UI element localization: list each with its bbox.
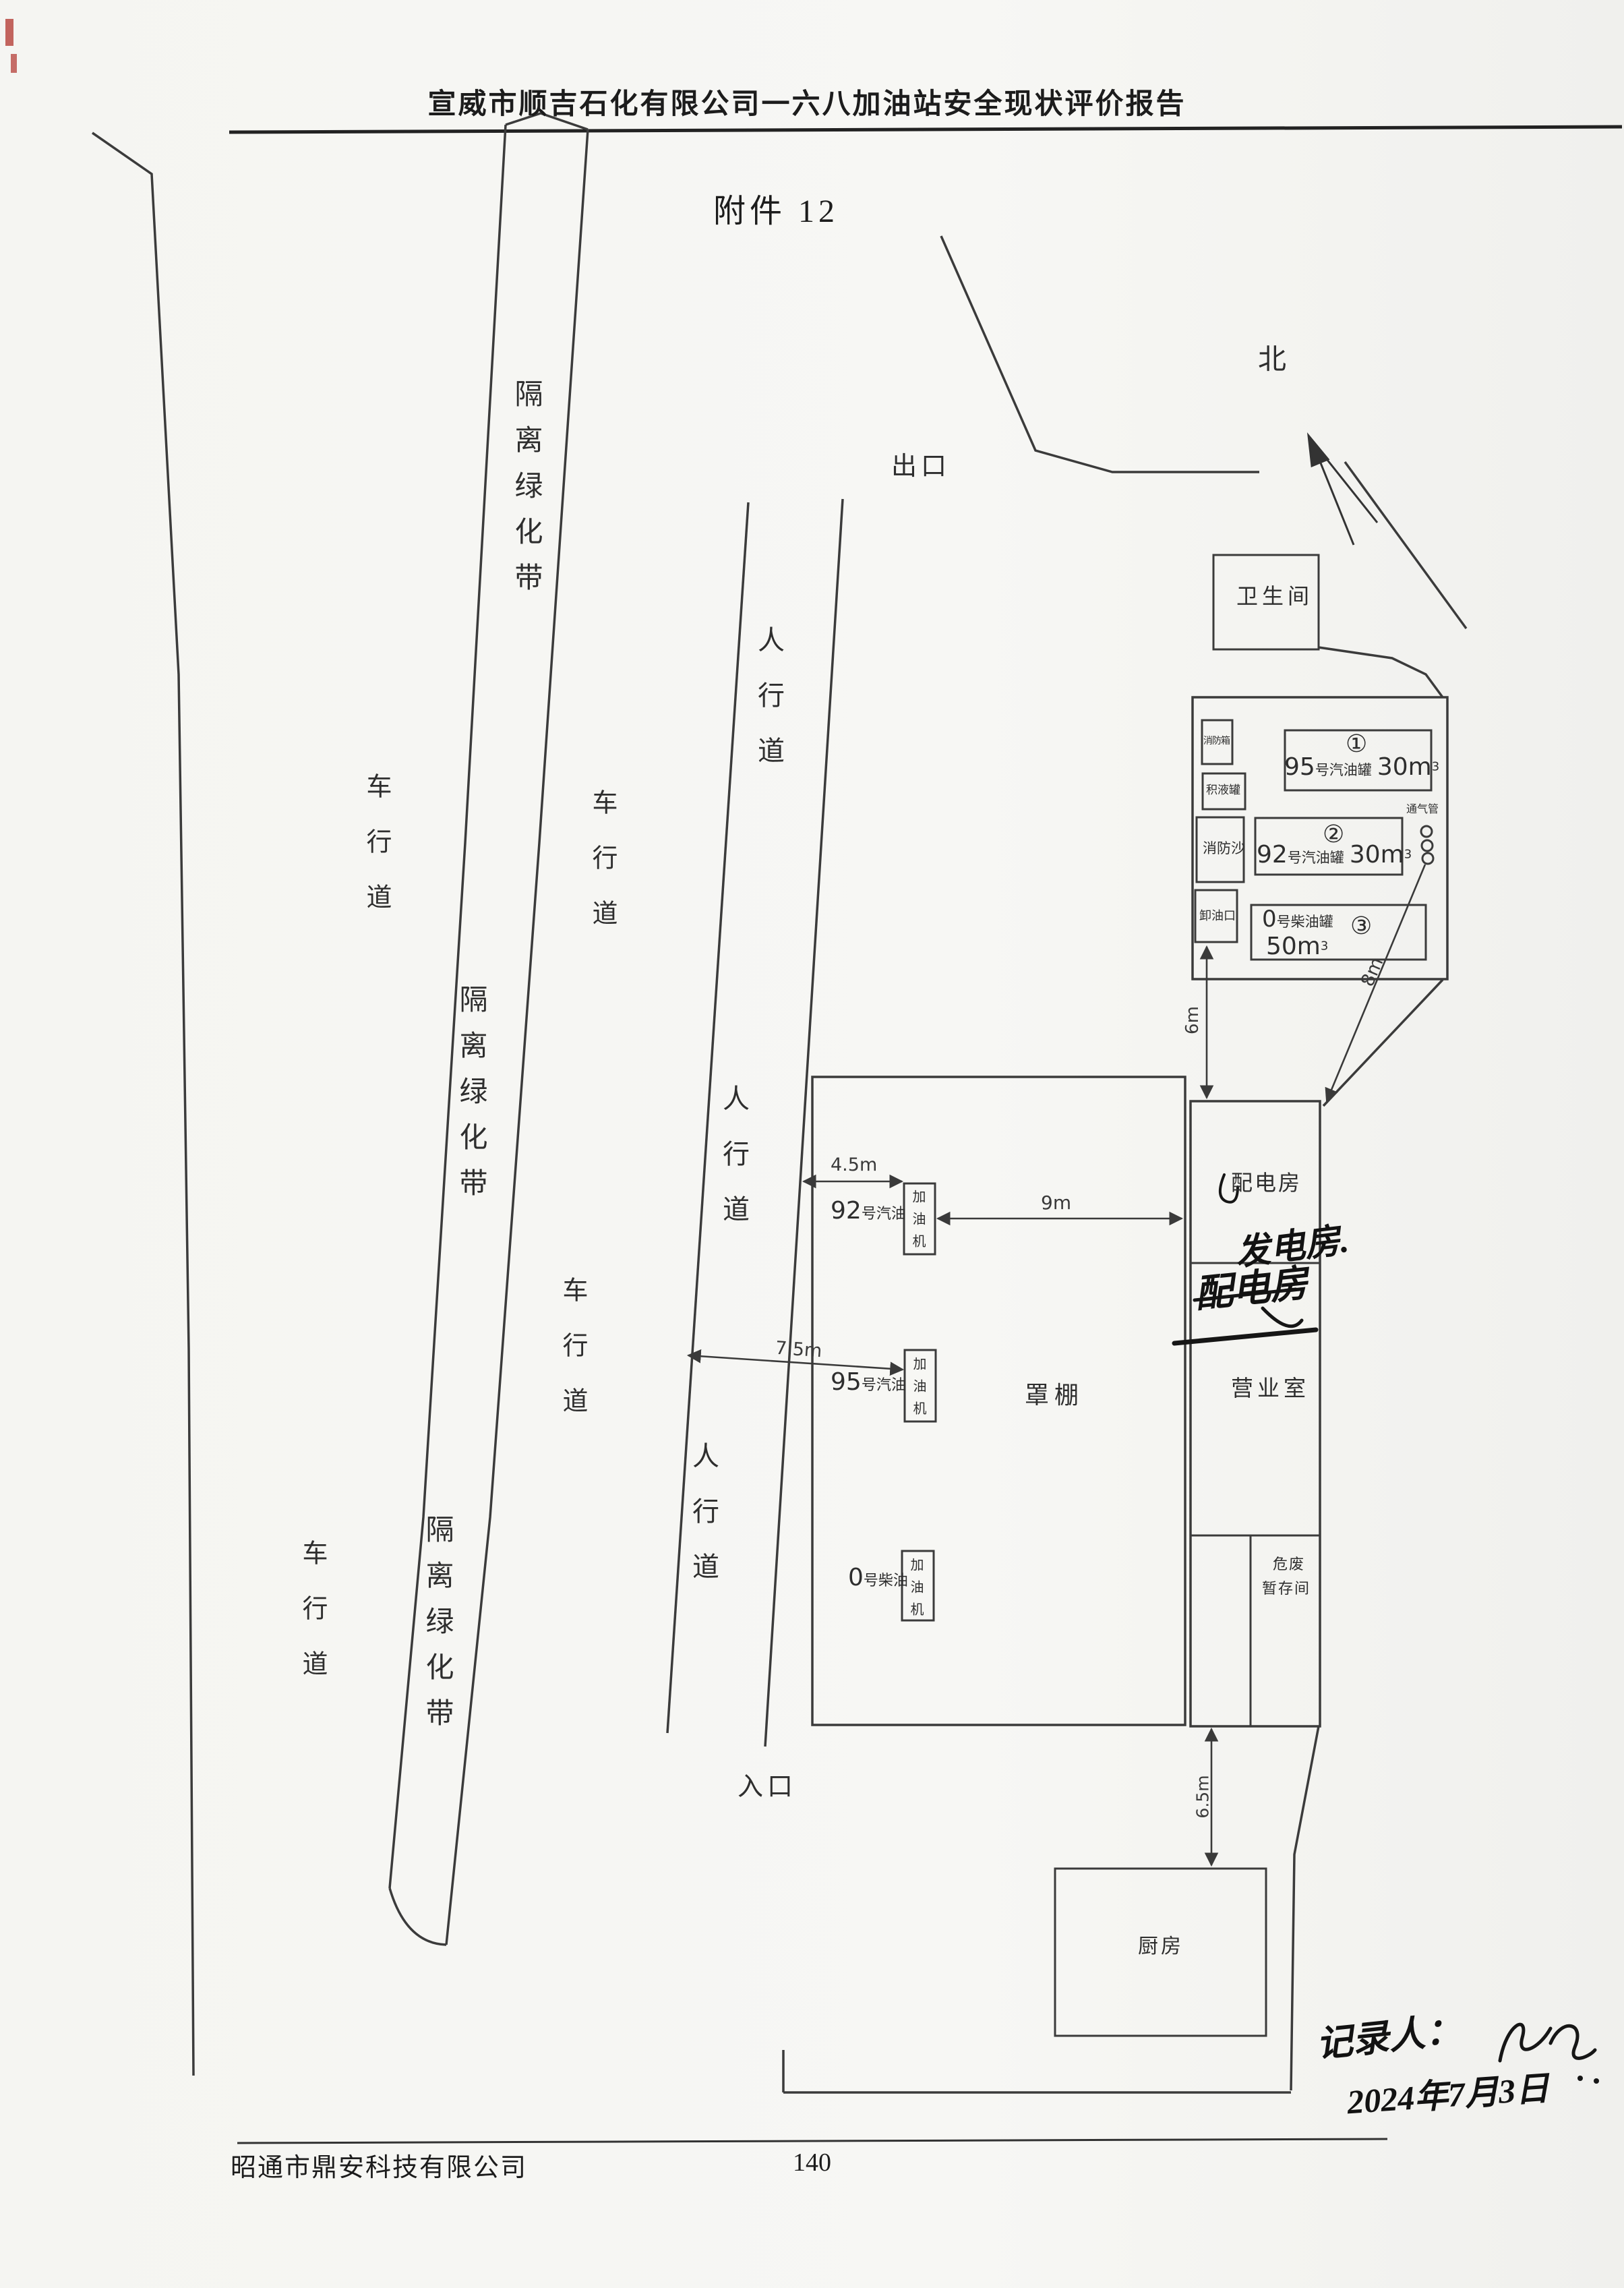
site-boundaries bbox=[783, 236, 1466, 2092]
scan-artifact-red-marks bbox=[5, 19, 17, 73]
dispenser-3-fuel-num: 0 bbox=[848, 1564, 864, 1591]
tank-1-volume: 30m bbox=[1377, 753, 1432, 781]
sidewalk-label-3: 人行道 bbox=[690, 1442, 717, 1608]
page-title: 宣威市顺吉石化有限公司一六八加油站安全现状评价报告 bbox=[335, 90, 1279, 119]
exit-boundary bbox=[941, 236, 1259, 472]
strike-2 bbox=[1174, 1330, 1316, 1343]
tank-3-volume-sup: 3 bbox=[1321, 939, 1328, 954]
vent-pipe-1 bbox=[1421, 826, 1432, 837]
tankarea-to-building-boundary bbox=[1323, 980, 1443, 1106]
tank-1-id: ① bbox=[1346, 732, 1367, 757]
vent-pipe-3 bbox=[1422, 853, 1433, 864]
tank-2-volume: 30m bbox=[1350, 841, 1404, 869]
hazwaste-label-line2: 暂存间 bbox=[1262, 1582, 1311, 1597]
restroom-boundary-curve bbox=[1319, 647, 1443, 697]
footer-page-number: 140 bbox=[793, 2150, 831, 2175]
restroom-label: 卫生间 bbox=[1236, 585, 1313, 607]
tank-2-num: 92 bbox=[1257, 841, 1288, 869]
greenbelt-label-2: 隔离绿化带 bbox=[457, 985, 485, 1214]
vent-pipe-label: 通气管 bbox=[1406, 804, 1439, 815]
tank-3-label-line1: 0号柴油罐 bbox=[1262, 908, 1333, 931]
vent-pipe-2 bbox=[1422, 840, 1433, 851]
tank-2-name: 号汽油罐 bbox=[1288, 850, 1344, 866]
dispenser-2-fuel-num: 95 bbox=[831, 1368, 862, 1396]
dispenser-3-fuel-name: 号柴油 bbox=[864, 1573, 908, 1589]
signature-dot-2 bbox=[1594, 2078, 1599, 2084]
dim-9m-label: 9m bbox=[1041, 1194, 1071, 1212]
north-label: 北 bbox=[1258, 345, 1286, 374]
business-room-label: 营业室 bbox=[1231, 1377, 1310, 1399]
footer-rule bbox=[237, 2139, 1387, 2143]
tank-3-volume: 50m bbox=[1266, 933, 1321, 960]
signature-dot-1 bbox=[1577, 2076, 1583, 2081]
tank-2-volume-sup: 3 bbox=[1404, 848, 1412, 862]
dispenser-2-unit-label: 加油机 bbox=[912, 1357, 926, 1424]
attachment-title: 附件 12 bbox=[713, 196, 839, 228]
sidewalk-label-2: 人行道 bbox=[720, 1084, 747, 1250]
dispenser-2-fuel-label: 95号汽油 bbox=[831, 1370, 906, 1395]
tank-1-num: 95 bbox=[1284, 753, 1315, 781]
tank-2-label: 92号汽油罐30m3 bbox=[1257, 843, 1412, 867]
lane-label-1: 车行道 bbox=[364, 773, 390, 939]
dim-7-5m-label: 7.5m bbox=[775, 1339, 822, 1361]
tank-3-name: 号柴油罐 bbox=[1277, 914, 1333, 930]
tank-3-id: ③ bbox=[1350, 914, 1372, 939]
fire-sand-label: 消防沙 bbox=[1203, 842, 1245, 856]
tank-3-label-line2: 50m3 bbox=[1266, 935, 1328, 959]
site-plan-linework bbox=[0, 0, 1624, 2288]
dim-6m-label: 6m bbox=[1184, 1006, 1201, 1034]
tank-1-label: 95号汽油罐30m3 bbox=[1284, 755, 1439, 780]
greenbelt-label-1: 隔离绿化带 bbox=[512, 379, 541, 608]
kitchen-label: 厨房 bbox=[1138, 1937, 1184, 1957]
sidewalk-label-1: 人行道 bbox=[755, 626, 782, 792]
fire-cabinet-label: 消防箱 bbox=[1203, 736, 1230, 746]
signature-scribble bbox=[1500, 2024, 1595, 2061]
lane-label-3: 车行道 bbox=[560, 1277, 586, 1442]
dim-4-5m-label: 4.5m bbox=[831, 1156, 877, 1174]
dispenser-1-fuel-name: 号汽油 bbox=[862, 1206, 906, 1223]
entrance-label: 入口 bbox=[738, 1773, 797, 1799]
scanned-site-plan-page: 宣威市顺吉石化有限公司一六八加油站安全现状评价报告 附件 12 隔离绿化带 隔离… bbox=[0, 0, 1624, 2288]
tank-1-name: 号汽油罐 bbox=[1315, 762, 1372, 778]
greenbelt-bottom-cap bbox=[390, 1888, 446, 1945]
dispenser-3-fuel-label: 0号柴油 bbox=[848, 1566, 908, 1590]
exit-label: 出口 bbox=[891, 453, 951, 479]
liquid-trap-tank-label: 积液罐 bbox=[1206, 785, 1240, 796]
dispenser-2-fuel-name: 号汽油 bbox=[862, 1377, 906, 1394]
bottomright-boundary bbox=[1291, 1726, 1319, 2090]
dim-6-5m-label: 6.5m bbox=[1195, 1775, 1211, 1818]
dispenser-1-fuel-num: 92 bbox=[831, 1197, 862, 1225]
tank-1-volume-sup: 3 bbox=[1432, 760, 1439, 774]
topright-boundary bbox=[1345, 462, 1466, 628]
greenbelt-label-3: 隔离绿化带 bbox=[423, 1515, 452, 1744]
lane-label-4: 车行道 bbox=[300, 1539, 326, 1705]
header-rule bbox=[229, 127, 1622, 132]
strike-tail bbox=[1263, 1308, 1302, 1326]
dispenser-3-unit-label: 加油机 bbox=[909, 1558, 923, 1624]
unload-port-label: 卸油口 bbox=[1199, 910, 1236, 922]
dispenser-1-unit-label: 加油机 bbox=[911, 1190, 925, 1256]
dispenser-1-fuel-label: 92号汽油 bbox=[831, 1199, 906, 1223]
dimension-lines bbox=[688, 864, 1425, 1865]
power-room-label: 配电房 bbox=[1231, 1172, 1302, 1194]
canopy-label: 罩棚 bbox=[1025, 1384, 1084, 1408]
road-left-boundary bbox=[92, 133, 193, 2076]
lane-label-2: 车行道 bbox=[590, 789, 615, 955]
footer-company: 昭通市鼎安科技有限公司 bbox=[231, 2155, 527, 2181]
hazwaste-label-line1: 危废 bbox=[1273, 1558, 1305, 1573]
tank-3-num: 0 bbox=[1262, 906, 1277, 933]
